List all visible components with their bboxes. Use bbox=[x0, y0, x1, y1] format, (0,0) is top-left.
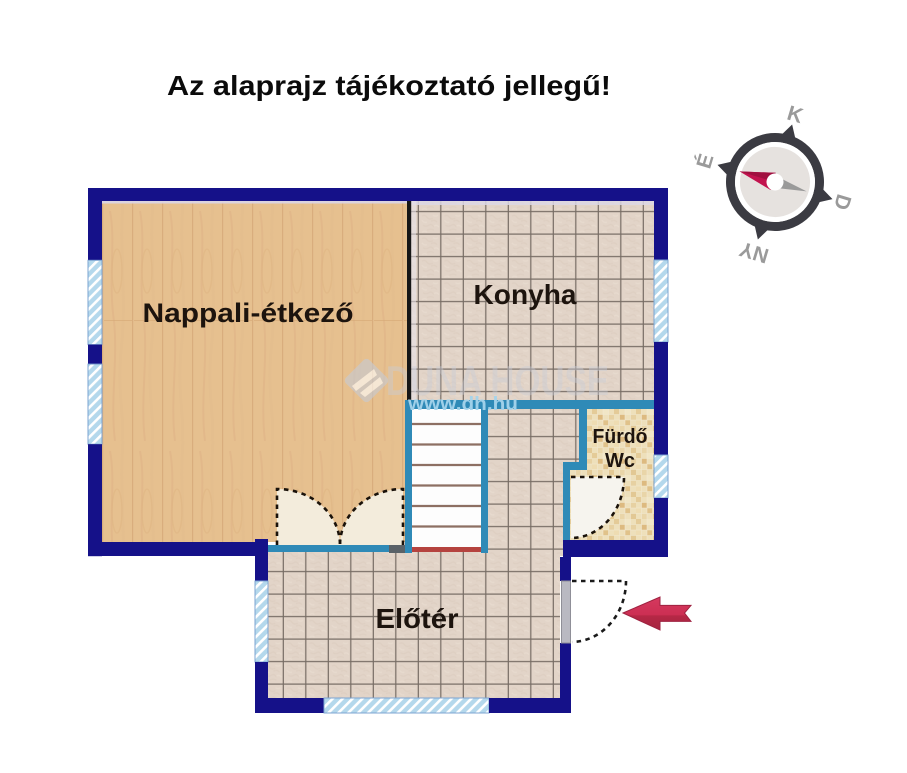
svg-text:Konyha: Konyha bbox=[474, 279, 577, 310]
svg-text:Az alaprajz tájékoztató jelleg: Az alaprajz tájékoztató jellegű! bbox=[167, 70, 611, 101]
svg-text:Nappali-étkező: Nappali-étkező bbox=[143, 298, 354, 328]
svg-text:www.dh.hu: www.dh.hu bbox=[407, 394, 518, 415]
svg-text:Fürdő: Fürdő bbox=[593, 426, 648, 448]
svg-text:Wc: Wc bbox=[605, 450, 635, 472]
svg-text:Előtér: Előtér bbox=[376, 603, 459, 634]
